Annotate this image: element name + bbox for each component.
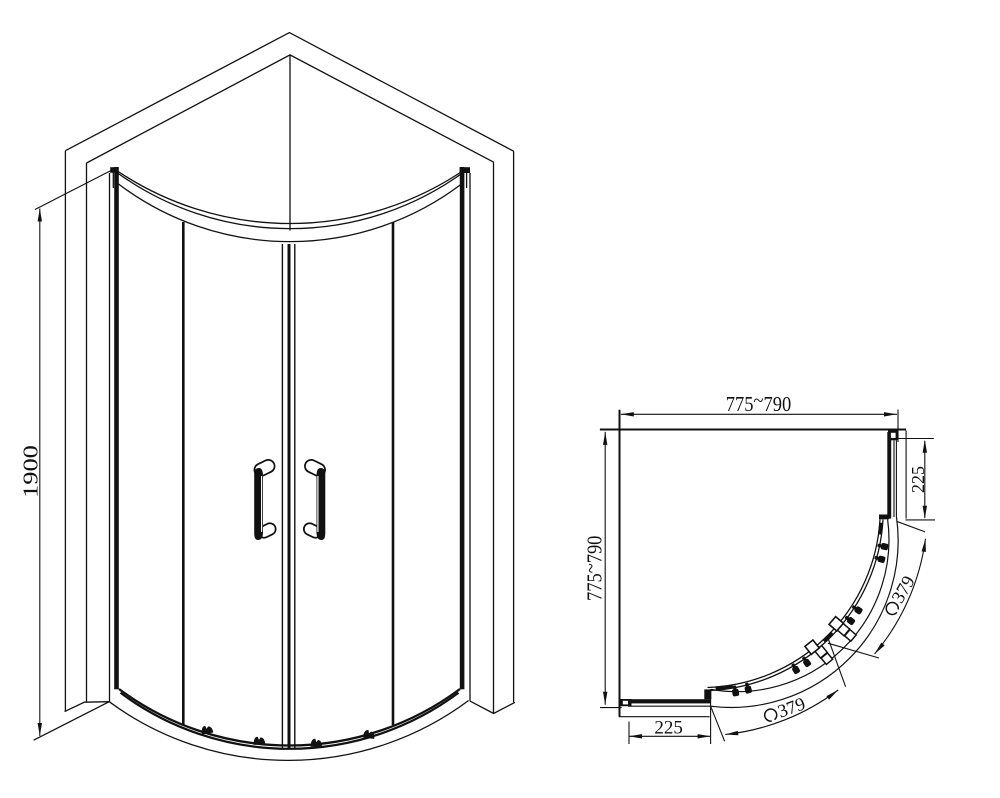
svg-text:225: 225 <box>908 466 928 493</box>
svg-text:225: 225 <box>654 718 683 739</box>
svg-text:775~790: 775~790 <box>726 389 792 416</box>
svg-text:379: 379 <box>775 694 808 722</box>
svg-text:1900: 1900 <box>20 445 43 498</box>
svg-text:775~790: 775~790 <box>579 535 606 601</box>
